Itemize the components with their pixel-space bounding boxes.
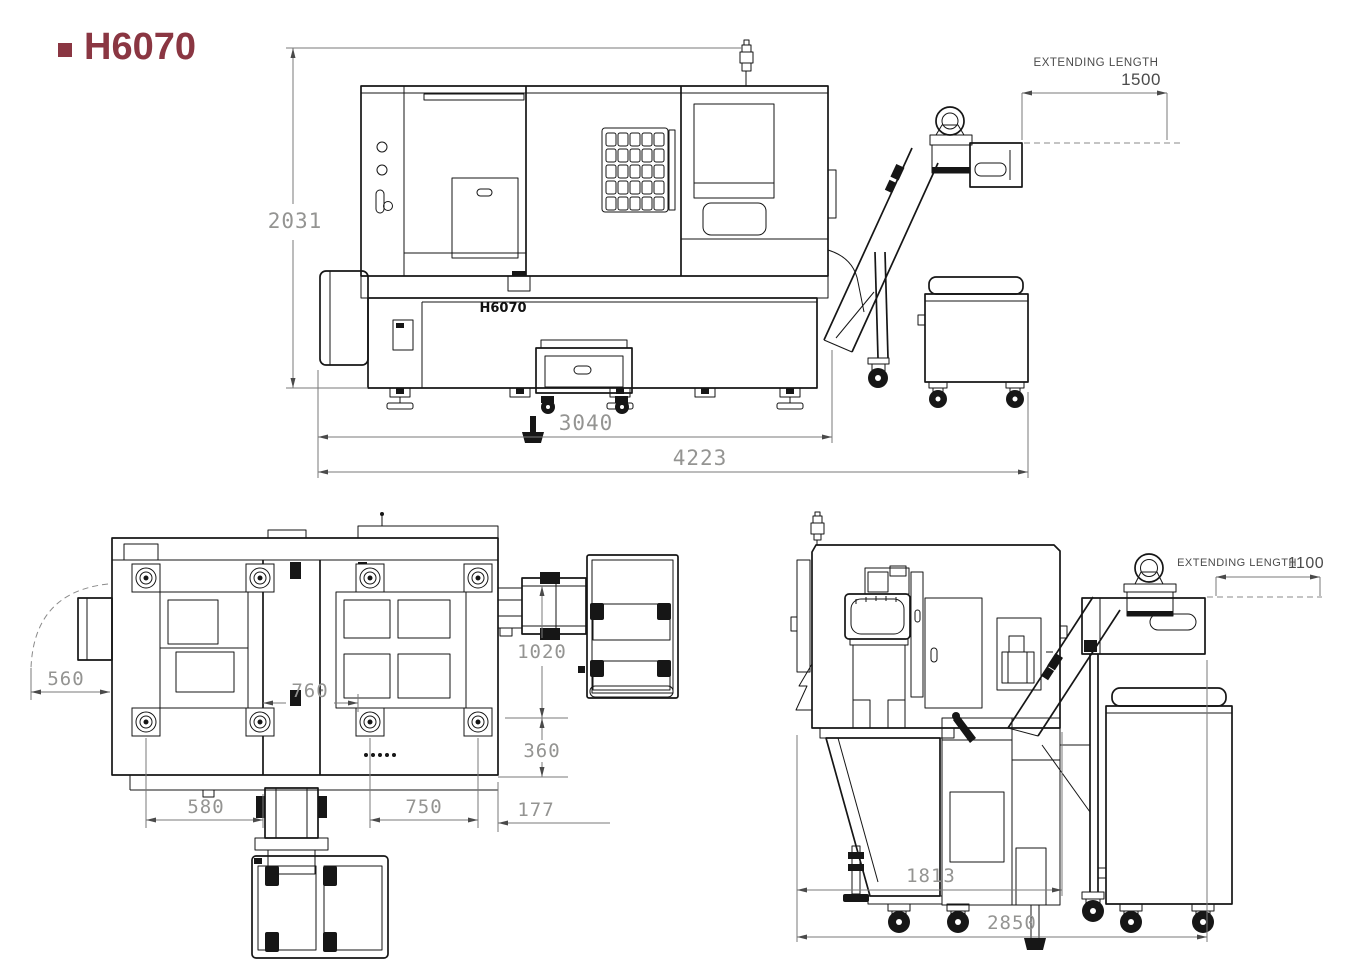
dimension-left-span-580: 580 — [146, 738, 263, 828]
dimension-overhang-177: 177 — [498, 782, 610, 832]
end-elevation-view: EXTENDING LENGTH 1100 1813 2850 — [791, 512, 1324, 950]
dimension-right-span-750: 750 — [370, 738, 478, 828]
drawing-page: H6070 — [0, 0, 1356, 972]
machine-model-label: H6070 — [479, 301, 526, 316]
svg-text:4223: 4223 — [673, 446, 728, 470]
end-chip-cart — [1098, 688, 1232, 933]
signal-lamp — [740, 40, 753, 86]
svg-text:1500: 1500 — [1121, 70, 1161, 89]
dimension-extending-length-1500: EXTENDING LENGTH 1500 — [1022, 57, 1182, 143]
plan-chip-cart-right — [578, 555, 678, 698]
technical-drawing: H6070 — [0, 0, 1356, 972]
plan-machine-body — [31, 512, 498, 797]
svg-text:1100: 1100 — [1288, 555, 1324, 572]
dimension-depth-1020: 1020 — [505, 586, 568, 718]
plan-conveyor-column — [255, 788, 328, 874]
svg-text:560: 560 — [47, 668, 84, 690]
dimension-extending-length-1100: EXTENDING LENGTH 1100 — [1177, 555, 1324, 597]
leveling-pads — [132, 564, 492, 736]
svg-text:750: 750 — [405, 796, 442, 818]
svg-text:177: 177 — [517, 799, 554, 821]
chip-cart-side — [918, 277, 1028, 408]
svg-text:360: 360 — [523, 740, 560, 762]
dimension-height: 2031 — [268, 48, 742, 388]
dimension-depth-360: 360 — [498, 718, 568, 777]
control-keypad — [602, 128, 675, 212]
plan-view: 560 760 1020 360 — [31, 512, 678, 958]
svg-text:3040: 3040 — [559, 411, 614, 435]
dimension-base-length: 3040 — [318, 350, 832, 478]
svg-text:2031: 2031 — [268, 209, 323, 233]
svg-text:1813: 1813 — [906, 865, 956, 887]
dimension-swing-560: 560 — [31, 668, 110, 700]
side-elevation-view: H6070 — [268, 40, 1182, 478]
svg-text:2850: 2850 — [987, 912, 1037, 934]
end-signal-lamp — [811, 512, 824, 545]
coolant-drawer — [536, 340, 632, 393]
svg-text:580: 580 — [187, 796, 224, 818]
svg-text:EXTENDING LENGTH: EXTENDING LENGTH — [1034, 57, 1159, 69]
plan-chip-cart-bottom — [252, 856, 388, 958]
chip-conveyor — [824, 107, 1022, 388]
dimension-overall-length: 4223 — [318, 392, 1028, 478]
svg-text:760: 760 — [291, 680, 328, 702]
machine-cabinet — [361, 86, 836, 276]
svg-text:1020: 1020 — [517, 641, 567, 663]
svg-text:EXTENDING LENGTH: EXTENDING LENGTH — [1177, 557, 1297, 569]
dimension-body-width-1813: 1813 — [797, 732, 1062, 942]
